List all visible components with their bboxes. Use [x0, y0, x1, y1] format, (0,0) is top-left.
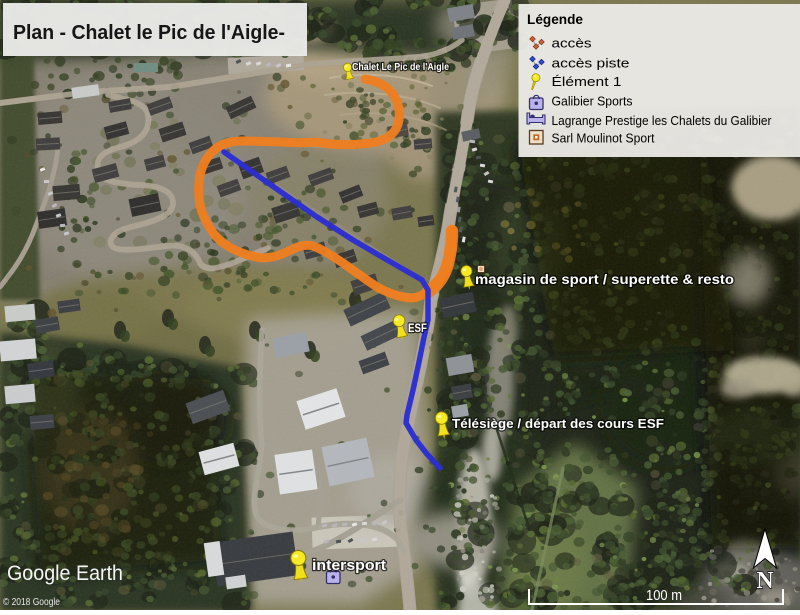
svg-text:© 2018 Google: © 2018 Google [3, 597, 60, 608]
svg-text:accès: accès [552, 35, 592, 50]
svg-text:ESF: ESF [408, 323, 427, 335]
svg-text:Sarl Moulinot Sport: Sarl Moulinot Sport [552, 130, 655, 145]
svg-text:Chalet Le Pic de l'Aigle: Chalet Le Pic de l'Aigle [352, 62, 449, 73]
svg-text:Télésiège / départ des cours E: Télésiège / départ des cours ESF [452, 416, 664, 431]
svg-text:N: N [756, 568, 774, 594]
svg-text:Galibier Sports: Galibier Sports [552, 93, 633, 108]
svg-text:Élément 1: Élément 1 [552, 74, 622, 89]
svg-text:accès piste: accès piste [552, 55, 630, 70]
svg-text:100 m: 100 m [646, 588, 682, 604]
svg-text:Légende: Légende [527, 12, 583, 27]
svg-text:magasin de sport / superette &: magasin de sport / superette & resto [475, 271, 734, 287]
svg-text:Lagrange Prestige les Chalets: Lagrange Prestige les Chalets du Galibie… [552, 113, 773, 128]
svg-text:intersport: intersport [312, 557, 386, 574]
svg-text:Plan - Chalet le Pic de l'Aigl: Plan - Chalet le Pic de l'Aigle- [13, 22, 285, 44]
svg-text:Google Earth: Google Earth [7, 562, 123, 585]
